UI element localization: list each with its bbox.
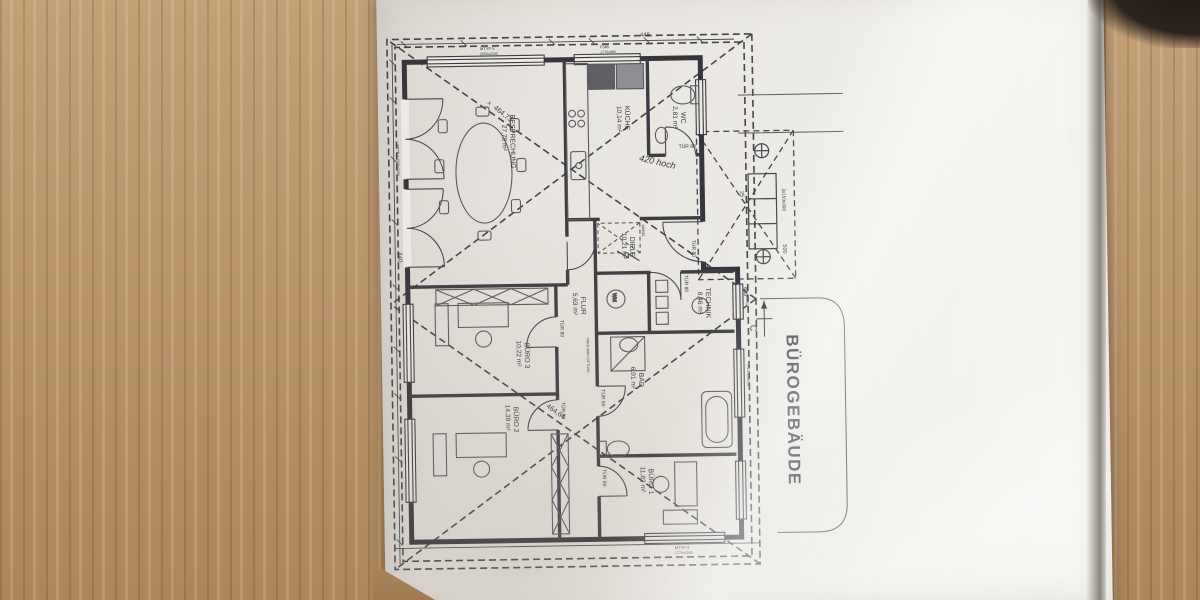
svg-text:10,22 m²: 10,22 m² [515,341,522,368]
svg-text:MTYP 5: MTYP 5 [480,46,495,51]
svg-text:F365: F365 [600,44,610,49]
french-door-2 [402,189,444,268]
wc-door [665,127,695,156]
svg-text:2565x2265: 2565x2265 [480,52,498,56]
svg-text:1770x2265: 1770x2265 [675,551,693,555]
svg-text:8,46 m²: 8,46 m² [696,292,703,315]
wardrobe-label: MÖBEL [641,225,645,238]
svg-text:25: 25 [738,191,744,197]
svg-text:440: 440 [396,252,402,263]
svg-text:TÜR 80: TÜR 80 [679,143,697,150]
plan-title: BÜROGEBÄUDE [783,334,804,486]
section-marker: C [748,301,773,337]
window-buero1-top [736,461,747,519]
svg-text:TÜR 80: TÜR 80 [558,320,565,338]
svg-text:10,21 m²: 10,21 m² [620,233,627,260]
svg-text:448: 448 [640,32,651,38]
room-label-buero1: BÜRO 111,82 m² [639,466,655,494]
window-wc [696,80,707,135]
svg-text:DIELE: DIELE [628,237,635,258]
svg-text:MTYP 2: MTYP 2 [675,545,690,550]
svg-text:3x150x300: 3x150x300 [781,188,786,211]
window-buero2 [405,419,416,502]
floor-plan-sheet: C BÜROGEBÄUDE [379,0,1100,600]
french-door-1 [401,99,444,180]
entrance-door [663,222,708,263]
svg-text:BÜRO 3: BÜRO 3 [523,342,531,368]
buero3-door [526,317,556,347]
room-label-diele: DIELE10,21 m² [620,233,635,260]
svg-text:TÜR 80: TÜR 80 [601,469,608,487]
room-label-wc: WC2,81 m² [671,106,686,129]
svg-text:F14 120x50: F14 120x50 [746,365,751,387]
room-labels: BESPRECHUNG27,79 m² KÜCHE10,14 m² WC2,81… [499,105,714,497]
svg-text:TÜR 80: TÜR 80 [599,389,606,407]
svg-text:BÜRO 1: BÜRO 1 [647,468,655,494]
svg-text:14,39 m²: 14,39 m² [504,405,511,432]
desk-buero2 [433,433,507,478]
svg-text:2,81 m²: 2,81 m² [671,106,678,129]
svg-text:FLUR: FLUR [579,296,586,314]
svg-text:BAD: BAD [637,373,644,388]
svg-text:1770x885: 1770x885 [600,50,616,54]
svg-text:27,79 m²: 27,79 m² [500,125,507,152]
room-label-kueche: KÜCHE10,14 m² [615,106,631,133]
svg-text:500: 500 [781,244,787,253]
vent-note: VOKO 4980 LÜFTUNG [586,337,591,373]
svg-text:KÜCHE: KÜCHE [623,106,631,131]
room-label-buero3: BÜRO 310,22 m² [515,340,531,368]
kitchen-counter [565,63,645,220]
desk-photo: C BÜROGEBÄUDE [0,0,1200,600]
svg-text:x: x [486,100,492,107]
svg-text:11,82 m²: 11,82 m² [639,467,646,493]
entrance-porch [748,143,778,263]
room-label-buero2: BÜRO 214,39 m² [504,405,520,433]
closet-corridor [551,434,570,534]
svg-text:TÜR 80: TÜR 80 [683,275,690,293]
room-label-flur: FLUR5,63 m² [571,292,586,315]
bathroom-fixtures: WM [597,288,733,457]
floor-plan-drawing: C BÜROGEBÄUDE [379,0,1100,600]
room-label-technik: TECHNIK8,46 m² [696,288,711,319]
washing-machine-label: WM [611,293,617,302]
svg-text:6,91 m²: 6,91 m² [629,367,636,390]
svg-text:TECHNIK: TECHNIK [704,288,711,319]
svg-text:WC: WC [679,112,686,124]
svg-text:TÜR 80: TÜR 80 [690,240,697,258]
svg-text:BÜRO 2: BÜRO 2 [512,407,520,433]
plan-paper-sheet: C BÜROGEBÄUDE [376,0,1113,600]
svg-text:F14 120x50: F14 120x50 [745,287,749,305]
svg-text:MTYP 4 2565x2265: MTYP 4 2565x2265 [396,144,400,176]
window-buero1-right [645,532,725,543]
window-buero3 [403,304,414,382]
window-bad [734,349,745,417]
section-label: C [748,325,758,332]
svg-text:10,14 m²: 10,14 m² [615,106,622,133]
desk-dark-corner [1088,0,1200,48]
desk-buero3 [435,303,509,348]
paper-edge-shadow [1086,0,1106,600]
window-besprechung [427,55,544,67]
svg-text:5,63 m²: 5,63 m² [571,293,578,316]
besprechung-door [567,241,595,269]
